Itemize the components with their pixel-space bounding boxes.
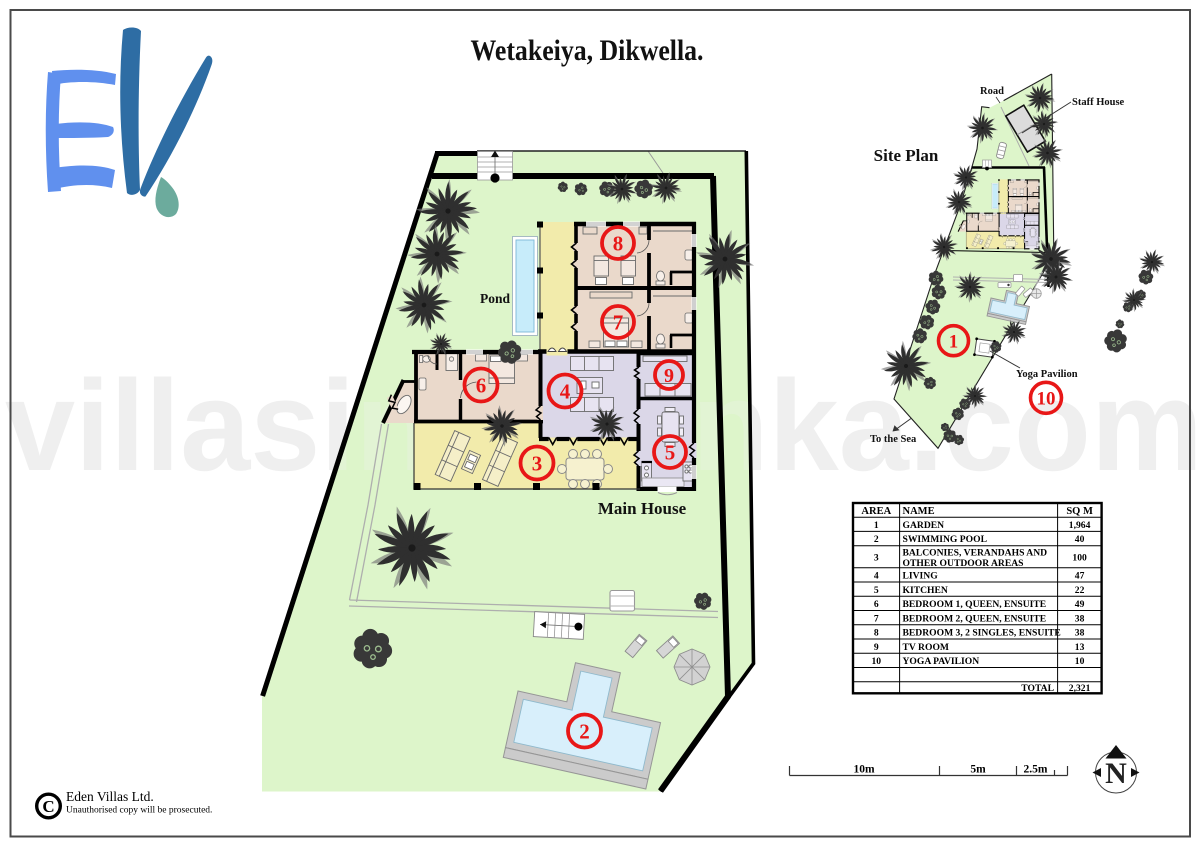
svg-text:NAME: NAME	[903, 506, 935, 517]
svg-text:YOGA PAVILION: YOGA PAVILION	[903, 656, 980, 667]
svg-text:2.5m: 2.5m	[1024, 764, 1048, 776]
svg-text:BEDROOM 2, QUEEN, ENSUITE: BEDROOM 2, QUEEN, ENSUITE	[903, 614, 1047, 625]
svg-text:4: 4	[560, 380, 571, 404]
svg-text:8: 8	[613, 232, 624, 256]
svg-text:4: 4	[874, 571, 879, 582]
svg-text:Staff House: Staff House	[1072, 97, 1125, 108]
svg-text:SWIMMING POOL: SWIMMING POOL	[903, 534, 987, 545]
svg-text:5: 5	[874, 585, 879, 596]
svg-text:10m: 10m	[853, 764, 875, 776]
svg-text:6: 6	[476, 374, 487, 398]
svg-text:3: 3	[532, 452, 543, 476]
svg-text:1: 1	[874, 520, 879, 531]
svg-text:Yoga Pavilion: Yoga Pavilion	[1016, 369, 1078, 380]
svg-text:10: 10	[872, 656, 882, 667]
svg-text:9: 9	[874, 642, 879, 653]
svg-text:Wetakeiya, Dikwella.: Wetakeiya, Dikwella.	[471, 34, 704, 67]
svg-text:KITCHEN: KITCHEN	[903, 585, 948, 596]
svg-text:1: 1	[949, 332, 959, 353]
svg-text:Pond: Pond	[480, 291, 511, 306]
svg-text:OTHER OUTDOOR AREAS: OTHER OUTDOOR AREAS	[903, 558, 1024, 569]
svg-text:7: 7	[613, 311, 624, 335]
svg-text:10: 10	[1075, 656, 1085, 667]
svg-text:38: 38	[1075, 628, 1085, 639]
svg-text:N: N	[1105, 757, 1127, 790]
svg-text:GARDEN: GARDEN	[903, 520, 945, 531]
svg-text:AREA: AREA	[861, 506, 891, 517]
svg-text:Road: Road	[980, 86, 1004, 97]
svg-text:TOTAL: TOTAL	[1021, 683, 1054, 694]
svg-text:10: 10	[1037, 389, 1056, 410]
svg-text:5: 5	[665, 441, 676, 465]
svg-text:47: 47	[1075, 571, 1085, 582]
svg-text:100: 100	[1072, 553, 1087, 564]
svg-text:8: 8	[874, 628, 879, 639]
svg-text:40: 40	[1075, 534, 1085, 545]
svg-text:49: 49	[1075, 599, 1085, 610]
svg-text:Main House: Main House	[598, 499, 687, 518]
svg-text:7: 7	[874, 614, 879, 625]
svg-text:38: 38	[1075, 614, 1085, 625]
svg-text:TV ROOM: TV ROOM	[903, 642, 949, 653]
svg-text:BEDROOM 3, 2 SINGLES, ENSUITE: BEDROOM 3, 2 SINGLES, ENSUITE	[903, 628, 1061, 639]
svg-text:5m: 5m	[970, 764, 986, 776]
svg-text:9: 9	[664, 365, 674, 387]
svg-text:2: 2	[579, 720, 590, 744]
svg-text:6: 6	[874, 599, 879, 610]
svg-text:3: 3	[874, 553, 879, 564]
svg-text:SQ M: SQ M	[1066, 506, 1093, 517]
svg-text:C: C	[42, 797, 54, 816]
svg-text:Site Plan: Site Plan	[874, 146, 939, 165]
svg-text:Eden Villas Ltd.: Eden Villas Ltd.	[66, 789, 154, 804]
svg-text:BEDROOM 1, QUEEN, ENSUITE: BEDROOM 1, QUEEN, ENSUITE	[903, 599, 1047, 610]
svg-text:2,321: 2,321	[1069, 683, 1091, 694]
svg-text:22: 22	[1075, 585, 1085, 596]
svg-text:Unauthorised copy will be pros: Unauthorised copy will be prosecuted.	[66, 806, 212, 816]
svg-text:2: 2	[874, 534, 879, 545]
svg-text:LIVING: LIVING	[903, 571, 939, 582]
svg-text:1,964: 1,964	[1069, 520, 1091, 531]
svg-text:To the Sea: To the Sea	[870, 434, 917, 445]
svg-text:13: 13	[1075, 642, 1085, 653]
